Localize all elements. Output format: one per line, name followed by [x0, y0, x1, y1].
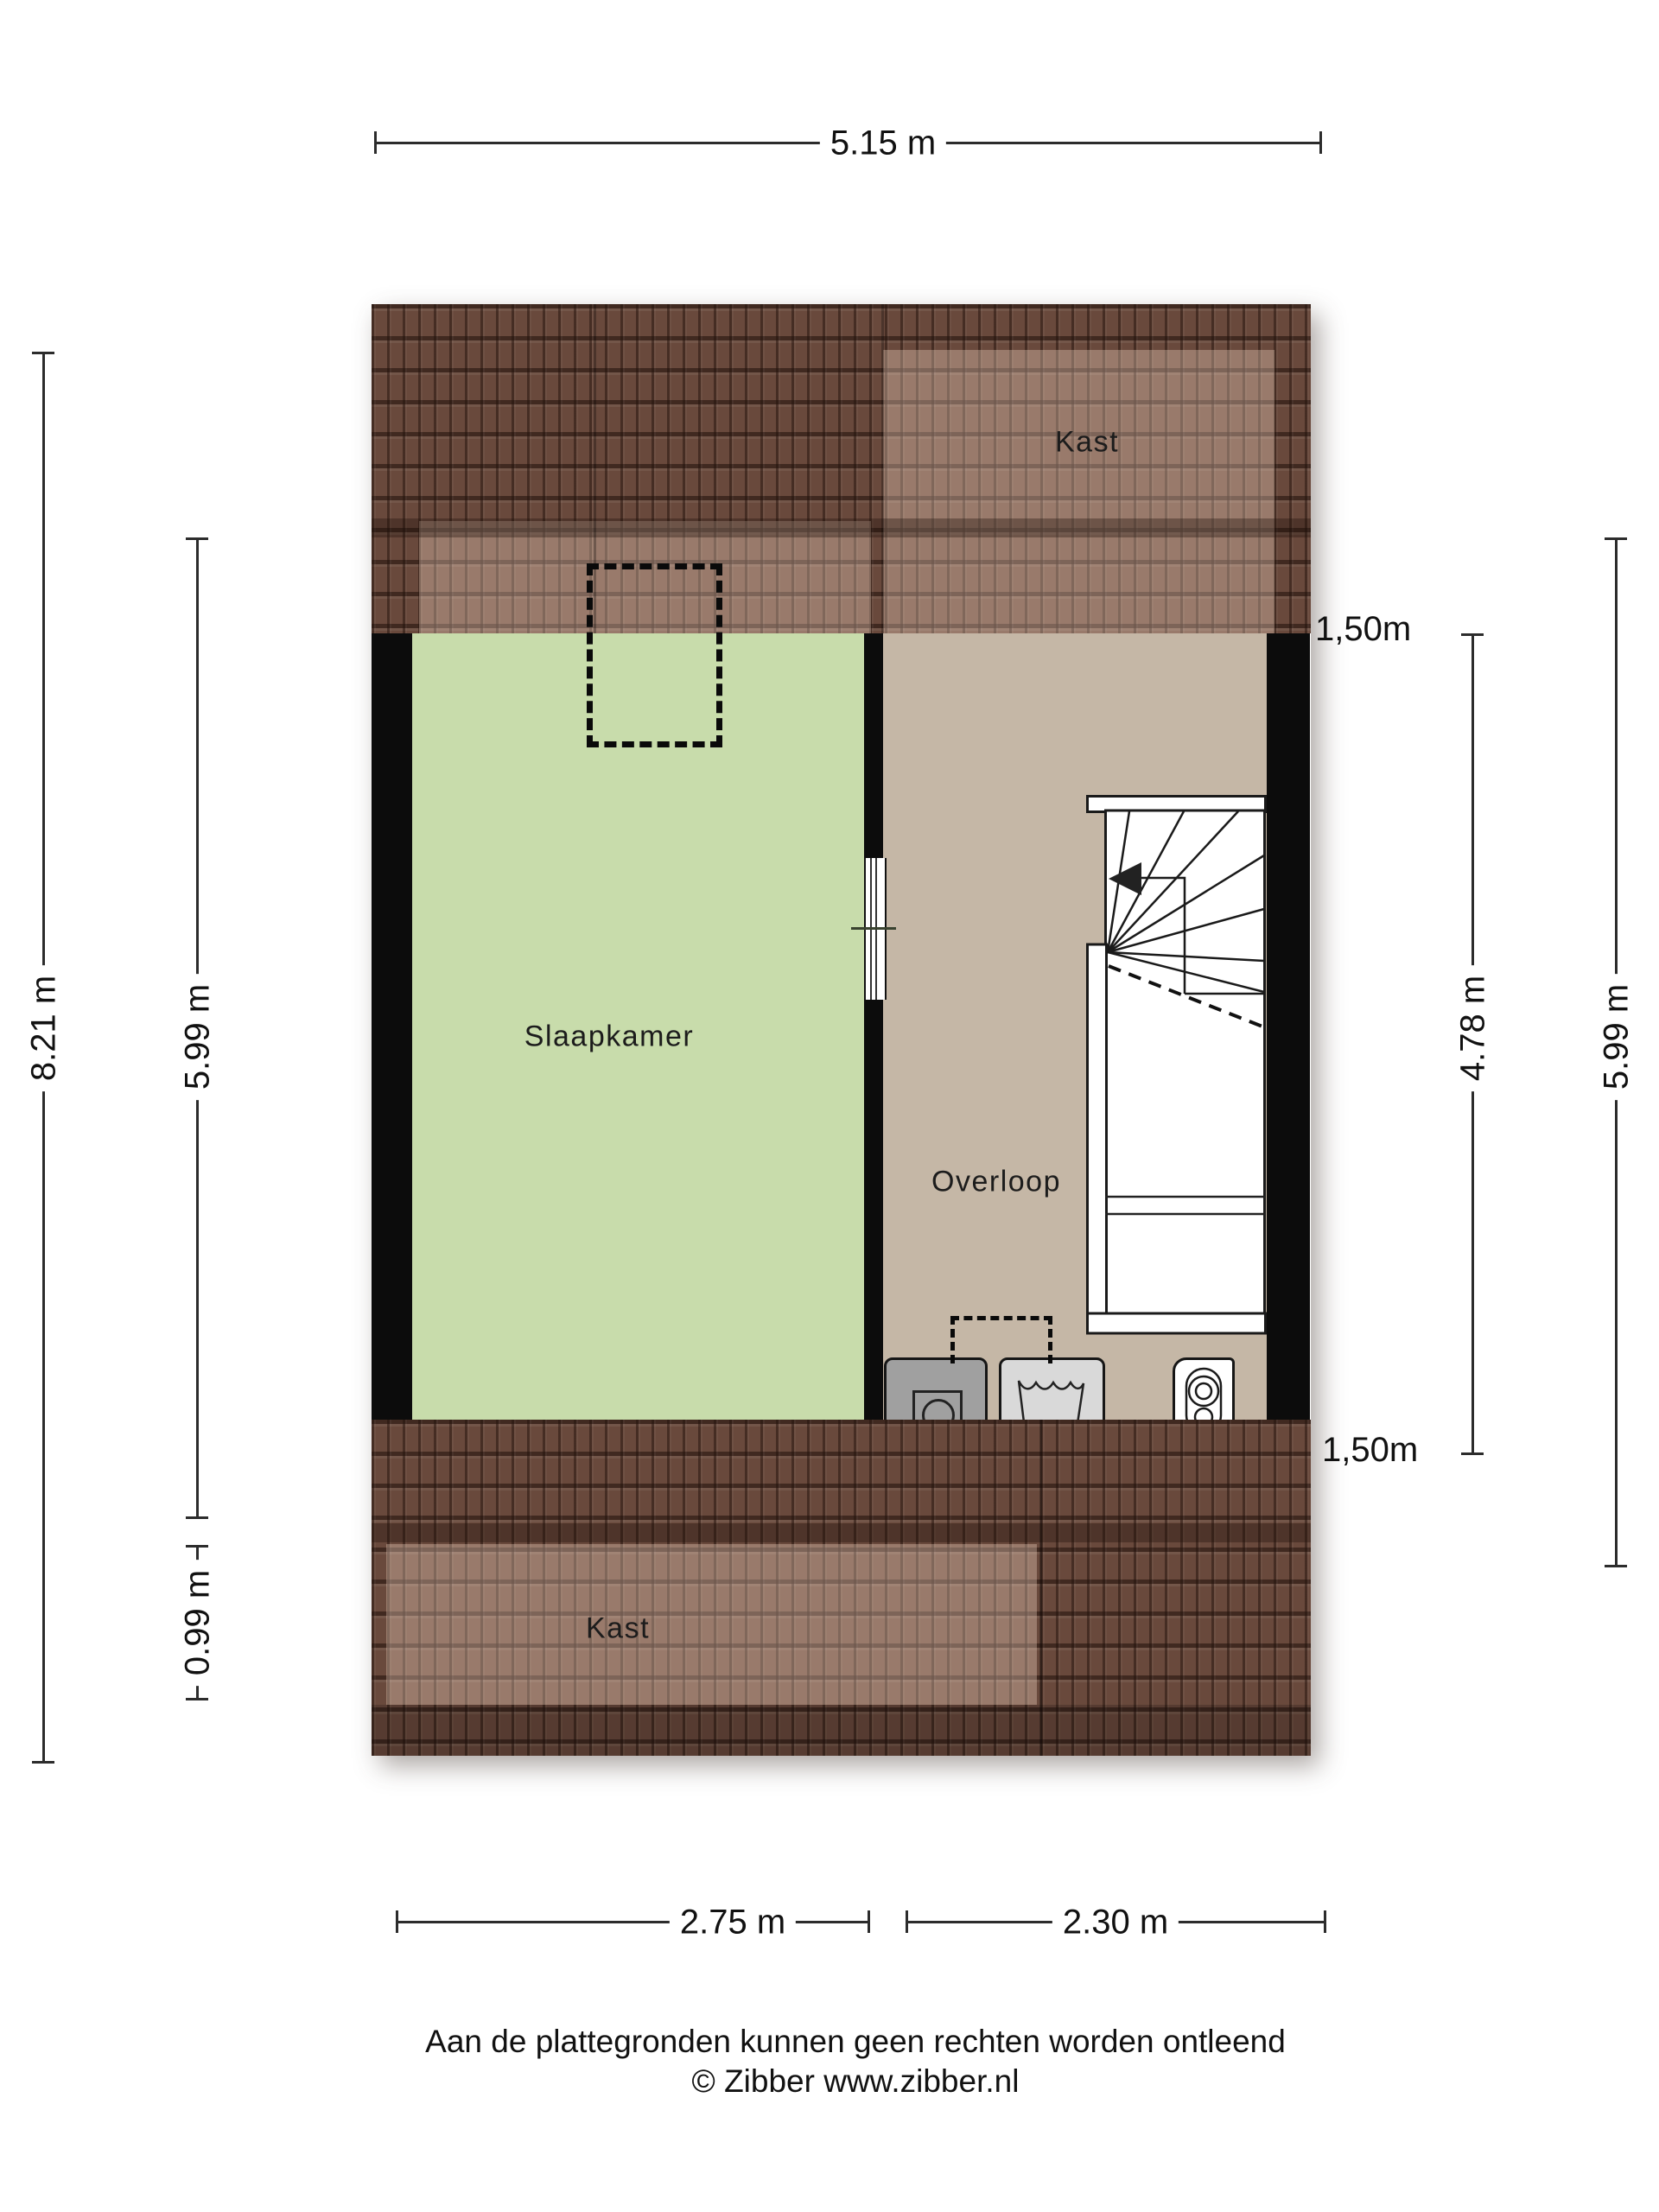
- dim-label-right-inner: 5.99 m: [1598, 974, 1637, 1100]
- dim-label-left-inner: 5.99 m: [179, 974, 218, 1100]
- label-knee-wall-bottom: 1,50m: [1322, 1431, 1418, 1470]
- dim-label-right-stair: 4.78 m: [1454, 965, 1493, 1091]
- dormer-dashed-outline: [587, 563, 722, 747]
- stairs: [1086, 795, 1267, 1335]
- label-closet-bottom: Kast: [586, 1612, 650, 1646]
- footer-disclaimer: Aan de plattegronden kunnen geen rechten…: [26, 2024, 1659, 2060]
- label-knee-wall-top: 1,50m: [1315, 610, 1411, 649]
- roof-bottom: [372, 1420, 1311, 1756]
- label-closet-top: Kast: [1055, 426, 1119, 460]
- dim-line-bottom-left: [396, 1921, 870, 1923]
- dim-label-left-total: 8.21 m: [25, 965, 64, 1091]
- label-overloop: Overloop: [931, 1166, 1061, 1199]
- appliance-dashed-outline: [950, 1316, 1052, 1363]
- wall-right: [1267, 633, 1310, 1420]
- closet-bottom-area: [386, 1544, 1037, 1705]
- roof-top: [372, 304, 1311, 633]
- dim-label-left-lower: 0.99 m: [179, 1560, 218, 1686]
- footer-copyright: © Zibber www.zibber.nl: [26, 2063, 1659, 2100]
- dim-label-bottom-right: 2.30 m: [1052, 1904, 1179, 1942]
- door-swing-tick: [851, 927, 896, 930]
- label-slaapkamer: Slaapkamer: [524, 1020, 694, 1054]
- closet-top-area: [883, 350, 1274, 633]
- dim-label-top-width: 5.15 m: [820, 124, 946, 163]
- wall-middle: [864, 633, 883, 1420]
- wall-left: [372, 633, 412, 1420]
- floor-plan-page: Kast Kast Slaapkamer Overloop 5.15 m 8.2…: [0, 0, 1659, 2212]
- dim-label-bottom-left: 2.75 m: [670, 1904, 796, 1942]
